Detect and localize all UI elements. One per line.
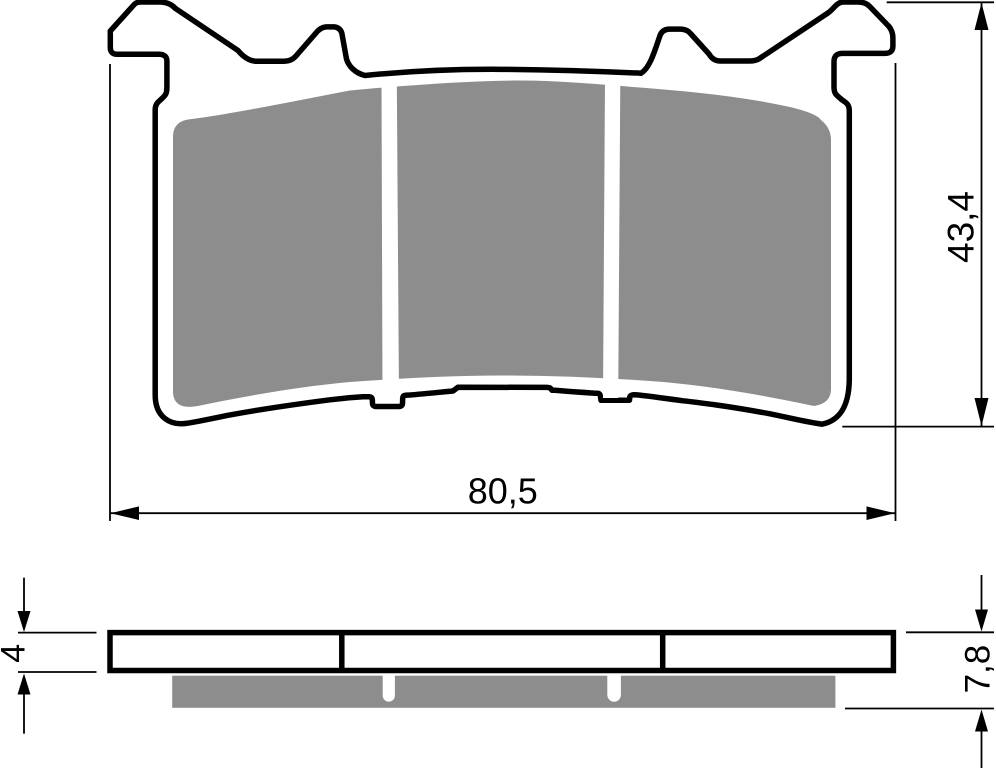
svg-text:80,5: 80,5 bbox=[468, 470, 538, 511]
svg-text:7,8: 7,8 bbox=[958, 645, 996, 694]
svg-text:43,4: 43,4 bbox=[940, 191, 981, 263]
svg-text:4: 4 bbox=[0, 644, 32, 663]
